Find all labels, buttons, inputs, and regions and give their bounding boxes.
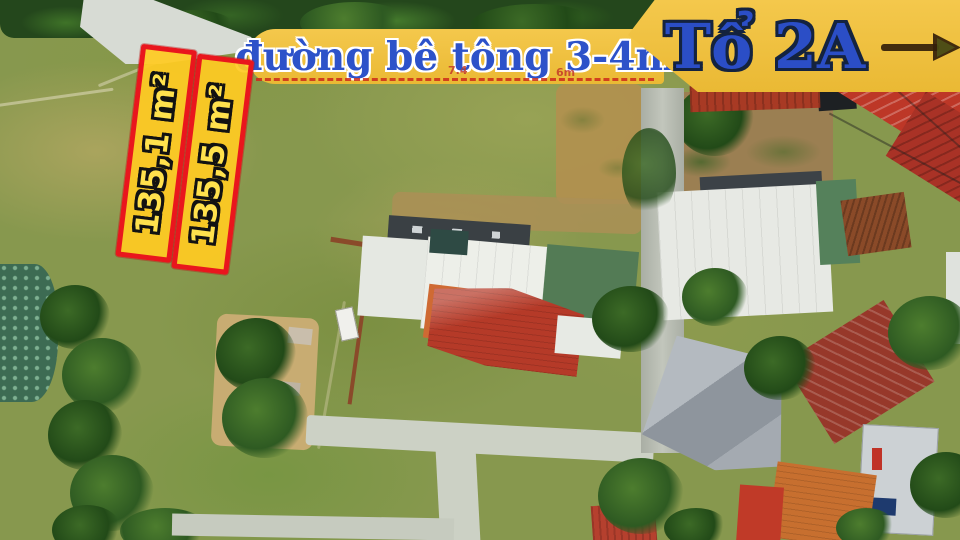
tree-blob xyxy=(592,286,670,352)
tree-blob xyxy=(622,128,676,218)
rust-corrugated-roof xyxy=(840,192,911,256)
compound-tree xyxy=(222,378,308,458)
dirt-trail xyxy=(0,88,114,108)
small-red-roof xyxy=(736,485,784,540)
tree-blob xyxy=(836,508,896,540)
teal-roof-piece xyxy=(429,229,469,256)
aerial-photo-scene: 7.4 6m đường bê tông 3-4m Tổ 2A 135,1 m²… xyxy=(0,0,960,540)
measurement-label-left: 7.4 xyxy=(448,64,468,77)
measurement-dashed-line xyxy=(256,78,654,81)
land-plots-group: 135,1 m² 135,5 m² xyxy=(115,44,256,271)
path-horizontal xyxy=(305,415,654,463)
red-rooftop-item xyxy=(872,448,882,470)
arrow-right-icon xyxy=(879,32,960,66)
tree-blob xyxy=(664,508,728,540)
path-bottom-left xyxy=(172,514,454,540)
area-banner: Tổ 2A xyxy=(628,0,960,92)
tree-blob xyxy=(682,268,748,326)
land-plot-1-label: 135,1 m² xyxy=(128,70,184,236)
land-plot-2-label: 135,5 m² xyxy=(185,81,241,247)
tree-blob xyxy=(744,336,816,400)
area-banner-label: Tổ 2A xyxy=(665,10,865,83)
measurement-label-right: 6m xyxy=(556,66,575,79)
